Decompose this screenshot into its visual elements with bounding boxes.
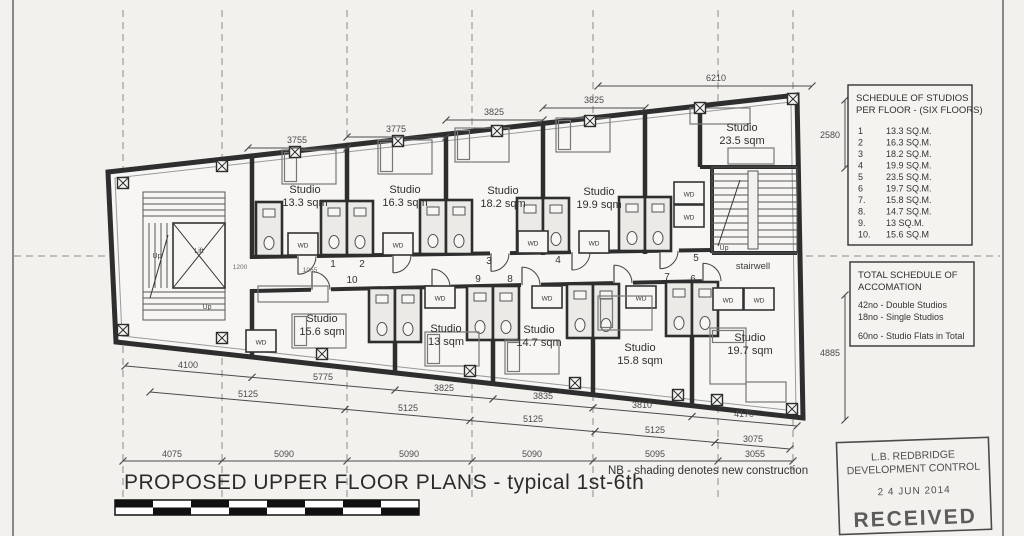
dimension-label: 5775 (313, 372, 333, 382)
svg-text:DEVELOPMENT CONTROL: DEVELOPMENT CONTROL (847, 461, 981, 478)
svg-text:9.: 9. (858, 218, 866, 228)
svg-text:13.3 SQ.M.: 13.3 SQ.M. (886, 126, 932, 136)
dimension-label: 3835 (533, 391, 553, 401)
dimension-label: 3055 (745, 449, 765, 459)
unit-number: 5 (693, 253, 699, 264)
scale-bar (115, 500, 419, 515)
svg-text:23.5 SQ.M.: 23.5 SQ.M. (886, 172, 932, 182)
unit-number: 4 (555, 255, 561, 266)
room-area: 15.8 sqm (617, 355, 662, 367)
svg-text:7.: 7. (858, 195, 866, 205)
drawing-title: PROPOSED UPPER FLOOR PLANS - typical 1st… (124, 471, 644, 494)
svg-text:10.: 10. (858, 230, 871, 240)
dimension-label: 4885 (820, 348, 840, 358)
dimension-label: 3075 (743, 434, 763, 444)
dimension-label: 5090 (522, 449, 542, 459)
dimension-label: 3825 (584, 95, 604, 105)
svg-text:15.8 SQ.M.: 15.8 SQ.M. (886, 195, 932, 205)
dimension-label: 5095 (645, 449, 665, 459)
dimension-label: 3755 (287, 135, 307, 145)
dimension-label: 4075 (162, 449, 182, 459)
dimension-label: 5090 (399, 449, 419, 459)
unit-number: 10 (346, 275, 358, 286)
up-label: Up (203, 304, 212, 311)
dimension-label: 5125 (523, 414, 543, 424)
svg-text:18no - Single Studios: 18no - Single Studios (858, 312, 944, 322)
dimension-label: 6210 (706, 73, 726, 83)
drawing-note: NB - shading denotes new construction (608, 465, 808, 477)
room-name: Studio (306, 313, 337, 325)
svg-text:15.6 SQ.M: 15.6 SQ.M (886, 230, 929, 240)
room-name: Studio (726, 122, 757, 134)
room-area: 19.9 sqm (576, 199, 621, 211)
schedule-title: SCHEDULE OF STUDIOS (856, 93, 968, 104)
room-area: 14.7 sqm (516, 337, 561, 349)
svg-text:6: 6 (858, 184, 863, 194)
room-area: 13.3 sqm (282, 197, 327, 209)
dimension-label: 4170 (734, 409, 754, 419)
svg-text:19.7 SQ.M.: 19.7 SQ.M. (886, 184, 932, 194)
room-area: 13 sqm (428, 336, 464, 348)
received-stamp: L.B. REDBRIDGE DEVELOPMENT CONTROL 2 4 J… (836, 437, 991, 534)
room-name: Studio (583, 186, 614, 198)
dimension-label: 4100 (178, 360, 198, 370)
room-name: Studio (389, 184, 420, 196)
svg-text:16.3 SQ.M.: 16.3 SQ.M. (886, 138, 932, 148)
dimension-label: 2580 (820, 130, 840, 140)
dimension-label: 3825 (434, 383, 454, 393)
scanned-plan-sheet: WD (0, 0, 1024, 536)
room-name: Studio (487, 185, 518, 197)
dimension-label: 1065 (303, 267, 318, 274)
svg-text:14.7 SQ.M.: 14.7 SQ.M. (886, 207, 932, 217)
total-schedule-box: TOTAL SCHEDULE OF ACCOMATION 42no - Doub… (850, 262, 974, 346)
lift-label: Lift (194, 248, 203, 255)
stamp-status: RECEIVED (853, 505, 977, 532)
up-label: Up (720, 245, 729, 252)
up-label: Up (153, 253, 162, 260)
dimension-label: 3825 (484, 107, 504, 117)
svg-text:19.9 SQ.M.: 19.9 SQ.M. (886, 161, 932, 171)
room-area: 23.5 sqm (719, 135, 764, 147)
dimension-label: 5125 (398, 403, 418, 413)
svg-text:13 SQ.M.: 13 SQ.M. (886, 218, 924, 228)
room-name: Studio (734, 332, 765, 344)
stairwell-label: stairwell (736, 261, 770, 272)
room-name: Studio (523, 324, 554, 336)
unit-number: 7 (664, 272, 670, 283)
unit-number: 1 (330, 259, 336, 270)
total-title: ACCOMATION (858, 282, 922, 293)
unit-number: 8 (507, 274, 513, 285)
unit-number: 6 (690, 274, 696, 285)
floor-plan-drawing: WD (0, 0, 1024, 536)
dimension-label: 5125 (645, 425, 665, 435)
svg-text:5: 5 (858, 172, 863, 182)
title-block: PROPOSED UPPER FLOOR PLANS - typical 1st… (115, 465, 808, 520)
dimension-label: 5125 (238, 389, 258, 399)
dimension-label: 5090 (274, 449, 294, 459)
schedule-title: PER FLOOR - (SIX FLOORS) (856, 105, 983, 116)
room-area: 18.2 sqm (480, 198, 525, 210)
schedule-box: SCHEDULE OF STUDIOS PER FLOOR - (SIX FLO… (848, 85, 983, 245)
dimension-label: 3810 (632, 400, 652, 410)
svg-text:18.2 SQ.M.: 18.2 SQ.M. (886, 149, 932, 159)
svg-text:42no - Double Studios: 42no - Double Studios (858, 300, 948, 310)
dimension-label: 1200 (233, 264, 248, 271)
room-name: Studio (624, 342, 655, 354)
svg-text:2: 2 (858, 138, 863, 148)
svg-text:8.: 8. (858, 207, 866, 217)
svg-text:3: 3 (858, 149, 863, 159)
dimension-label: 3775 (386, 124, 406, 134)
svg-text:60no - Studio Flats in Total: 60no - Studio Flats in Total (858, 331, 964, 341)
room-area: 19.7 sqm (727, 345, 772, 357)
svg-text:1: 1 (858, 126, 863, 136)
svg-text:4: 4 (858, 161, 863, 171)
room-name: Studio (430, 323, 461, 335)
room-area: 16.3 sqm (382, 197, 427, 209)
unit-number: 2 (359, 259, 365, 270)
unit-number: 9 (475, 274, 481, 285)
total-title: TOTAL SCHEDULE OF (858, 270, 958, 281)
room-area: 15.6 sqm (299, 326, 344, 338)
room-name: Studio (289, 184, 320, 196)
unit-number: 3 (486, 256, 492, 267)
stamp-date: 2 4 JUN 2014 (877, 485, 950, 499)
